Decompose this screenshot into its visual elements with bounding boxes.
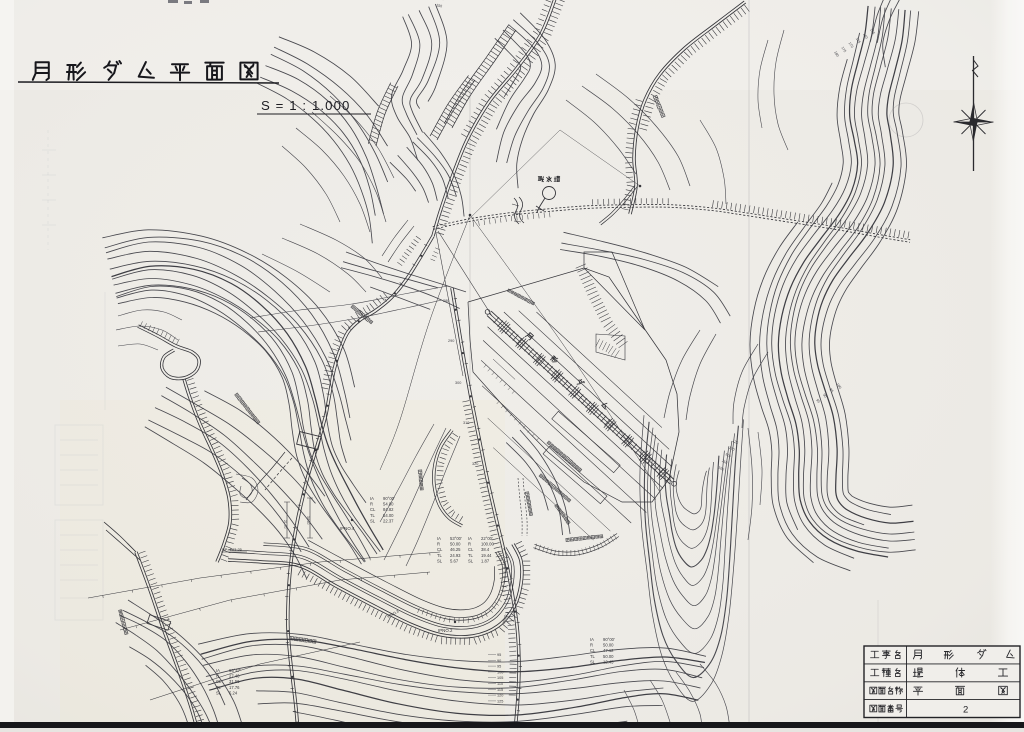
svg-text:27.46: 27.46: [229, 674, 240, 679]
svg-text:CL: CL: [468, 547, 474, 552]
svg-text:17.76: 17.76: [229, 685, 240, 690]
svg-text:TL: TL: [216, 685, 222, 690]
svg-text:100.00: 100.00: [481, 542, 494, 547]
svg-text:34.60: 34.60: [306, 516, 310, 525]
svg-text:2: 2: [963, 705, 968, 716]
svg-text:R: R: [370, 502, 373, 507]
svg-text:54.00: 54.00: [383, 502, 394, 507]
svg-text:90: 90: [497, 659, 501, 663]
svg-text:21.00: 21.00: [283, 520, 287, 529]
svg-text:S = 1 : 1.000: S = 1 : 1.000: [261, 98, 350, 113]
svg-text:105: 105: [497, 676, 503, 680]
svg-text:5.24: 5.24: [229, 690, 238, 695]
svg-text:SL: SL: [468, 558, 474, 563]
svg-text:125: 125: [497, 699, 503, 703]
svg-text:50.00: 50.00: [450, 542, 461, 547]
svg-text:CL: CL: [437, 547, 443, 552]
svg-text:1.87: 1.87: [481, 558, 490, 563]
svg-text:320: 320: [472, 462, 478, 466]
svg-text:300: 300: [455, 381, 461, 385]
svg-text:22.37: 22.37: [383, 518, 394, 523]
svg-text:46.25: 46.25: [450, 547, 461, 552]
svg-text:TL: TL: [590, 654, 596, 659]
svg-text:24.93: 24.93: [450, 553, 461, 558]
svg-text:50.00: 50.00: [603, 643, 614, 648]
svg-text:IA: IA: [590, 637, 594, 642]
svg-text:IA: IA: [468, 536, 472, 541]
svg-text:IPNO.2: IPNO.2: [438, 628, 453, 633]
svg-text:IA: IA: [216, 668, 220, 673]
svg-text:SL: SL: [216, 690, 222, 695]
svg-text:31.56: 31.56: [229, 679, 240, 684]
svg-text:84.82: 84.82: [383, 507, 394, 512]
svg-text:95: 95: [497, 665, 501, 669]
svg-text:115: 115: [497, 688, 503, 692]
svg-text:TL: TL: [437, 553, 443, 558]
svg-text:TL: TL: [370, 513, 376, 518]
svg-text:SL: SL: [590, 659, 596, 664]
svg-text:53°00′: 53°00′: [450, 536, 462, 541]
svg-text:110: 110: [497, 682, 503, 686]
svg-text:BP=683.25: BP=683.25: [222, 547, 243, 552]
svg-text:95: 95: [497, 653, 501, 657]
svg-text:CL: CL: [590, 648, 596, 653]
svg-text:R: R: [468, 542, 471, 547]
svg-text:CL: CL: [216, 679, 222, 684]
svg-text:R: R: [590, 643, 593, 648]
svg-text:120: 120: [497, 694, 503, 698]
svg-text:5.67: 5.67: [450, 558, 459, 563]
svg-text:SL: SL: [437, 558, 443, 563]
svg-text:47.12: 47.12: [603, 648, 614, 653]
svg-text:TL: TL: [468, 553, 474, 558]
svg-text:IPNO.4: IPNO.4: [340, 526, 355, 531]
svg-text:38.4: 38.4: [481, 547, 490, 552]
svg-text:65°47′: 65°47′: [229, 668, 241, 673]
svg-text:54.00: 54.00: [383, 513, 394, 518]
svg-text:R: R: [216, 674, 219, 679]
svg-text:90°00′: 90°00′: [603, 637, 615, 642]
svg-text:100: 100: [497, 670, 503, 674]
svg-text:SL: SL: [370, 518, 376, 523]
svg-text:12.43: 12.43: [603, 659, 614, 664]
svg-text:90°00′: 90°00′: [383, 496, 395, 501]
svg-text:290: 290: [448, 339, 454, 343]
svg-text:R: R: [437, 542, 440, 547]
svg-text:CL: CL: [370, 507, 376, 512]
svg-text:50.00: 50.00: [603, 654, 614, 659]
svg-text:310: 310: [463, 421, 469, 425]
svg-text:IA: IA: [437, 536, 441, 541]
svg-text:IA: IA: [370, 496, 374, 501]
svg-text:19.44: 19.44: [481, 553, 492, 558]
svg-text:22°00′: 22°00′: [481, 536, 493, 541]
